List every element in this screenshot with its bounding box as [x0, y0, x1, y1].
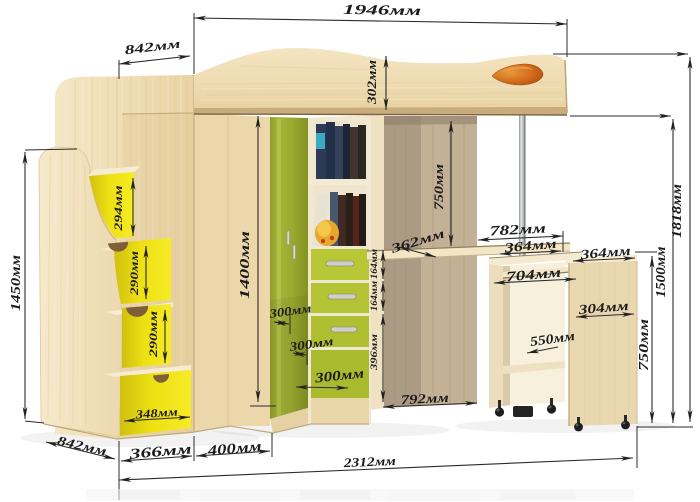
svg-text:290мм: 290мм — [146, 311, 160, 358]
svg-text:164мм: 164мм — [369, 281, 379, 311]
svg-text:164мм: 164мм — [369, 249, 379, 279]
svg-text:1400мм: 1400мм — [238, 230, 253, 299]
svg-text:290мм: 290мм — [127, 251, 141, 296]
svg-text:750мм: 750мм — [637, 318, 652, 371]
svg-text:396мм: 396мм — [370, 333, 380, 371]
svg-text:2312мм: 2312мм — [342, 453, 396, 470]
svg-text:792мм: 792мм — [400, 390, 449, 407]
svg-text:1500мм: 1500мм — [654, 246, 669, 297]
svg-text:750мм: 750мм — [431, 164, 446, 210]
svg-text:1946мм: 1946мм — [343, 3, 422, 19]
svg-text:1818мм: 1818мм — [670, 184, 685, 238]
svg-text:302мм: 302мм — [364, 60, 379, 105]
svg-text:1450мм: 1450мм — [9, 255, 24, 311]
svg-text:294мм: 294мм — [111, 186, 125, 232]
